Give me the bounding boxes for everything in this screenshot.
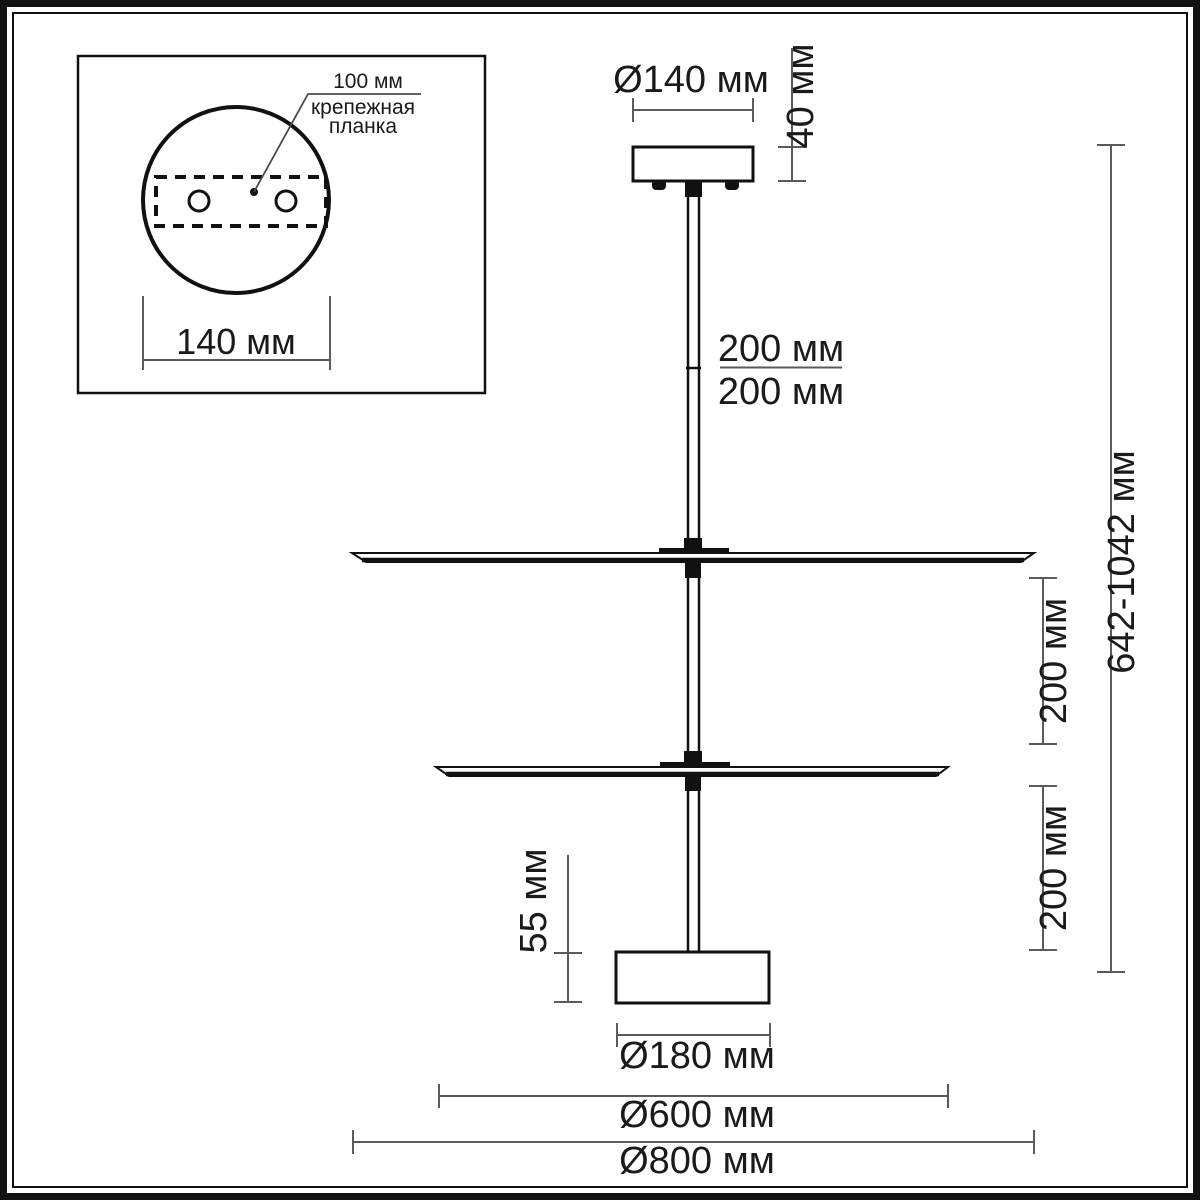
overall-height-label: 642-1042 мм	[1101, 450, 1143, 673]
screw-right	[725, 180, 739, 190]
fixture-dimension-drawing: 100 мм крепежная планка 140 мм Ø140 мм 4…	[0, 0, 1200, 1200]
top-disc-diameter-label: Ø800 мм	[619, 1140, 775, 1182]
rod-top-segment-label: 200 мм	[718, 328, 844, 370]
canopy-diameter-label: Ø140 мм	[613, 59, 769, 101]
collar-below-disc1	[685, 562, 701, 578]
bracket-label-line2: планка	[329, 115, 398, 138]
dim-gap-disc2-base: 200 мм	[1029, 786, 1075, 950]
disc2-bracket	[660, 762, 730, 767]
rod-bottom-segment-label: 200 мм	[718, 371, 844, 413]
plate-diameter-label: 140 мм	[176, 321, 296, 362]
dim-gap-disc1-disc2: 200 мм	[1029, 578, 1075, 744]
canopy-connector	[685, 180, 702, 197]
inset-panel: 100 мм крепежная планка 140 мм	[78, 56, 485, 393]
collar-below-disc2	[685, 776, 701, 791]
screw-left	[652, 180, 666, 190]
base-diameter-label: Ø180 мм	[619, 1035, 775, 1077]
gap-disc2-base-label: 200 мм	[1033, 805, 1075, 931]
disc1-bracket	[659, 548, 729, 553]
middle-disc-diameter-label: Ø600 мм	[619, 1094, 775, 1136]
base-cylinder	[616, 952, 769, 1003]
hole-spacing-label: 100 мм	[333, 70, 403, 93]
gap-disc1-disc2-label: 200 мм	[1033, 598, 1075, 724]
canopy-height-label: 40 мм	[780, 43, 822, 148]
base-height-label: 55 мм	[513, 848, 555, 953]
dim-rod-segments: 200 мм 200 мм	[718, 328, 844, 413]
